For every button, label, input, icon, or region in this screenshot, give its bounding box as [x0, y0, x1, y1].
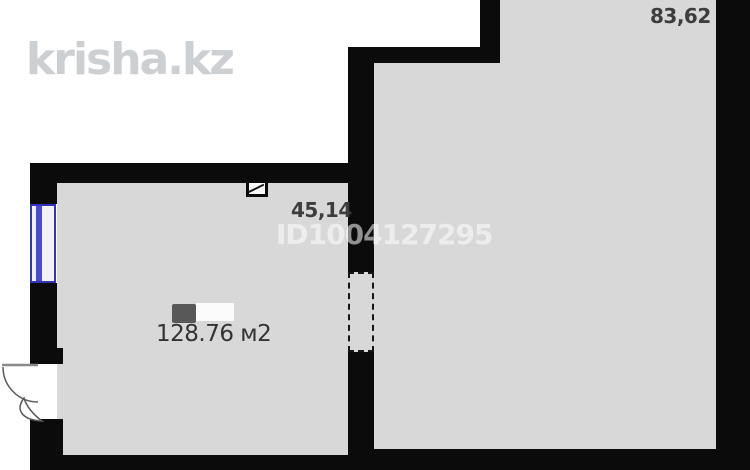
site-logo-watermark: krisha.kz [26, 38, 233, 82]
wall-left-middle [30, 283, 57, 356]
door-swing-symbol [0, 355, 66, 430]
wall-top-right-room [348, 47, 500, 63]
dimension-label-left-room: 45,14 [291, 200, 352, 220]
wall-middle-lower [348, 352, 374, 470]
window-pane-line [36, 206, 42, 281]
wall-step-right-room [480, 0, 500, 63]
listing-id-watermark: ID1004127295 [276, 221, 492, 249]
floor-right-room-main [374, 63, 716, 450]
area-label-right-room: 83,62 [650, 6, 700, 26]
floorplan-image: 83,62 45,14 128.76 м2 krisha.kz ID100412… [0, 0, 750, 470]
dashed-wall-opening [348, 272, 374, 352]
blurred-patch-light [196, 303, 234, 321]
wall-left-upper [30, 163, 57, 204]
wall-bottom-right [374, 449, 750, 470]
wall-top-left-room [30, 163, 374, 183]
total-area-label: 128.76 м2 [156, 323, 271, 346]
window-symbol [30, 204, 56, 283]
wall-niche [246, 183, 268, 197]
wall-bottom-left [30, 455, 374, 470]
wall-right-exterior [716, 0, 750, 470]
niche-diagonal-line [248, 184, 264, 193]
